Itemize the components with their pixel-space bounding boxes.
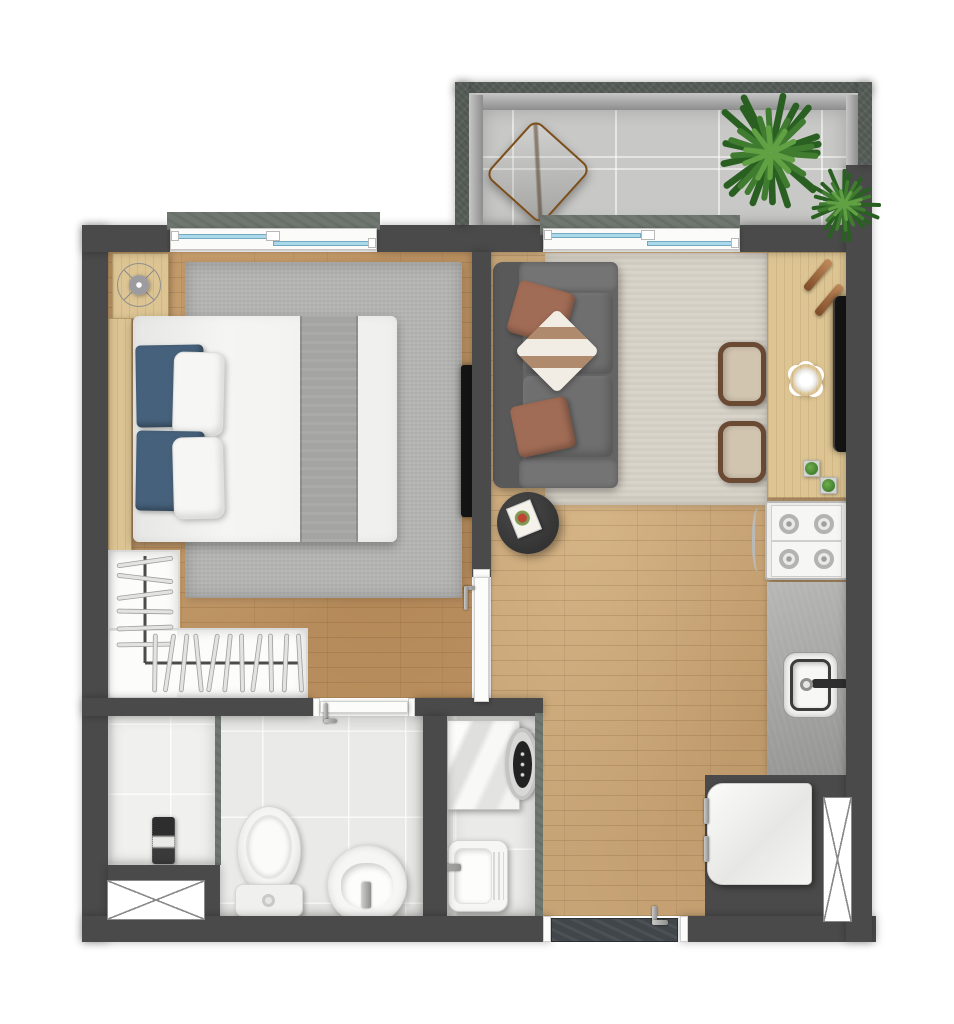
laundry-tub-ribs — [493, 852, 504, 900]
service-shaft-left — [107, 880, 205, 920]
kitchen-faucet-base — [800, 678, 813, 691]
wall-bedroom-divider — [472, 252, 491, 577]
bed-headboard — [108, 318, 132, 562]
oven-handle-icon — [752, 508, 764, 572]
burner-4 — [814, 549, 834, 569]
balcony-door-mullion — [641, 230, 655, 240]
flower-vase — [790, 364, 822, 396]
balcony-coping-right — [846, 95, 858, 165]
balcony-door-cap-r — [731, 238, 739, 248]
kitchen-faucet — [812, 679, 848, 688]
dining-chair-2 — [718, 421, 766, 483]
wall-top-b — [377, 225, 543, 252]
bedroom-door-handle-bar — [464, 586, 468, 610]
balcony-coping-left — [469, 95, 483, 225]
bedroom-window-glass-1 — [176, 234, 272, 239]
wall-left — [82, 225, 108, 942]
pillow-white-2 — [172, 436, 225, 519]
balcony-parapet-right — [858, 82, 872, 165]
service-shaft-right — [823, 797, 852, 922]
shower-drain-column — [152, 817, 175, 864]
bedroom-window-glass-2 — [273, 241, 370, 246]
balcony-door-glass-2 — [647, 241, 739, 246]
entry-door-jamb-l — [543, 916, 551, 942]
balcony-plant-small-icon — [804, 164, 884, 244]
burner-3 — [779, 549, 799, 569]
entry-door-handle — [652, 920, 668, 925]
balcony-door-cap-l — [544, 230, 552, 240]
bedroom-door — [474, 577, 489, 702]
floor-plan — [0, 0, 954, 1024]
closet-hangers-icon — [107, 550, 308, 700]
bedroom-window-mullion — [266, 231, 280, 241]
mini-plant-1 — [805, 462, 818, 475]
bedroom-window-cap-r — [368, 238, 376, 248]
balcony-door-glass-1 — [549, 233, 641, 238]
bed-runner-blanket — [300, 316, 358, 542]
laundry-partition — [535, 713, 543, 916]
cooktop-divider — [771, 540, 842, 542]
fridge-handle-2 — [704, 836, 709, 862]
table-lamp-shade — [129, 275, 149, 295]
burner-1 — [779, 514, 799, 534]
pillow-white-1 — [172, 351, 225, 436]
bedroom-window-cap-l — [171, 231, 179, 241]
bathroom-door-jamb-l — [313, 698, 320, 717]
burner-2 — [814, 514, 834, 534]
wall-bathroom-top-left — [82, 698, 313, 716]
toilet-seat — [246, 815, 292, 879]
toilet-flush-button — [262, 894, 275, 907]
sofa-armrest-bottom — [519, 459, 618, 488]
washer-door-glass — [513, 741, 532, 788]
mini-plant-2 — [822, 479, 835, 492]
dining-chair-1 — [718, 342, 766, 406]
washbasin-faucet — [362, 882, 371, 908]
bathroom-door — [320, 701, 408, 713]
laundry-tub-basin — [454, 848, 492, 904]
shower-glass-divider — [215, 716, 221, 865]
bathroom-door-jamb-r — [408, 698, 415, 717]
entry-door-jamb-r — [680, 916, 688, 942]
fridge-handle-1 — [704, 798, 709, 824]
refrigerator — [707, 783, 812, 885]
bathroom-door-handle — [324, 719, 337, 723]
wall-bathroom-right — [423, 716, 447, 916]
wall-top-a — [82, 225, 170, 252]
balcony-parapet-left — [455, 82, 469, 225]
